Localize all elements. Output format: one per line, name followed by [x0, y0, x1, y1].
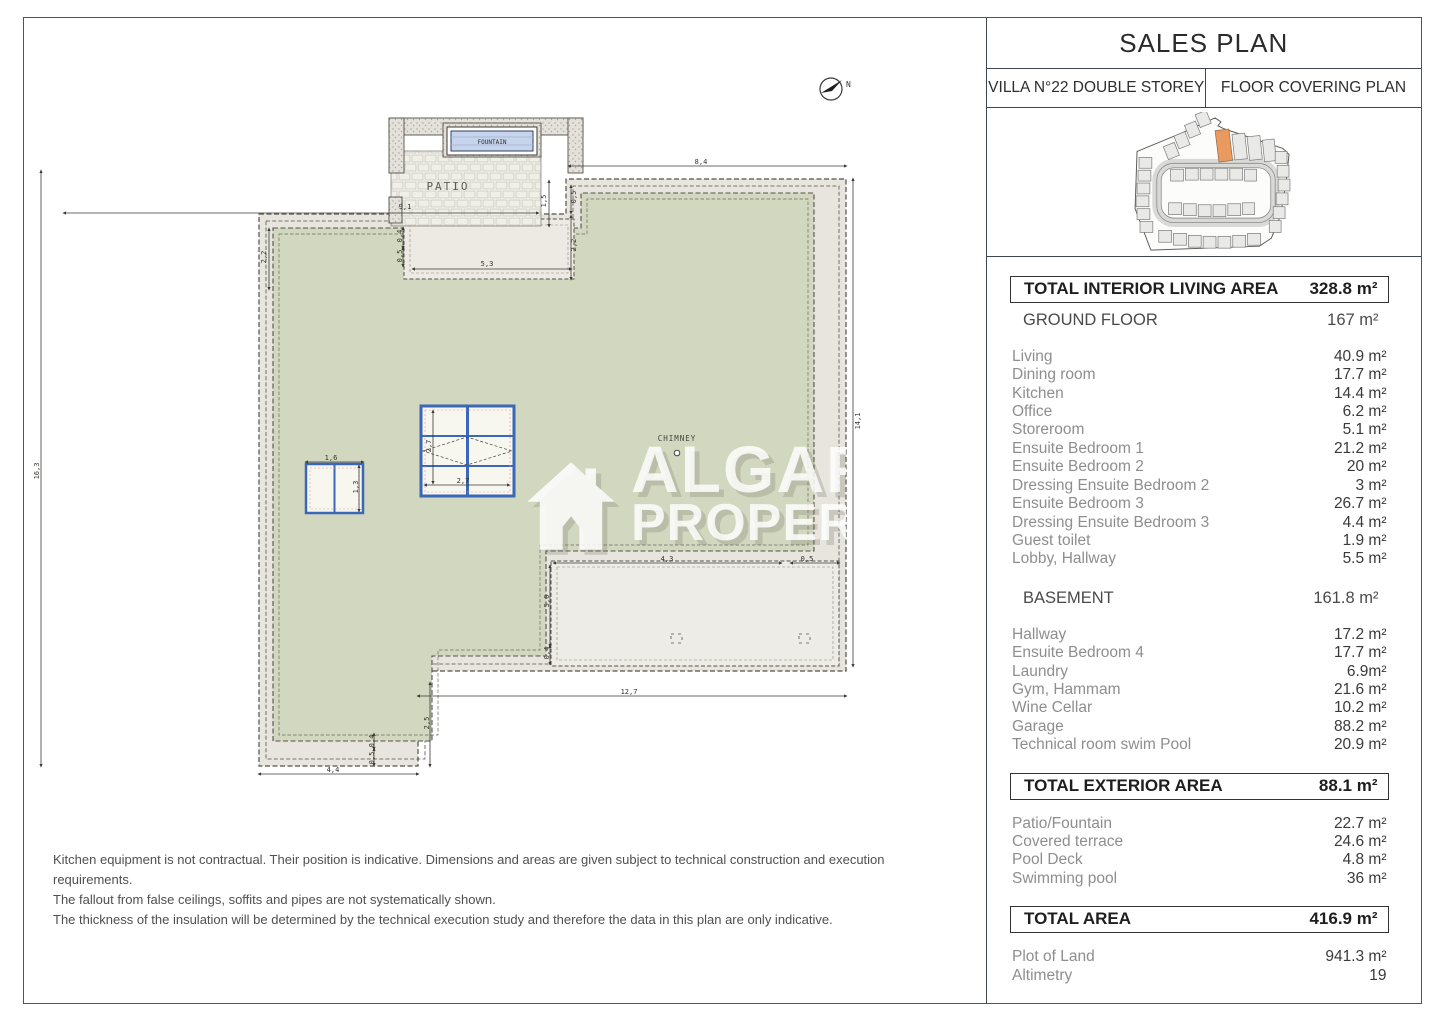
- room-area-value: 4.8 m²: [1343, 851, 1387, 869]
- room-row: Patio/Fountain22.7 m²: [1012, 815, 1387, 833]
- room-area-value: 17.7 m²: [1334, 644, 1387, 662]
- dimension-label: 0,5: [368, 752, 376, 765]
- room-label: Garage: [1012, 718, 1064, 736]
- room-area-value: 5.5 m²: [1343, 550, 1387, 568]
- room-area-value: 22.7 m²: [1334, 815, 1387, 833]
- room-row: Altimetry19: [1012, 967, 1387, 985]
- sheet-border: N PATIO FOUNTAIN CHIMNEY ALGARVE PROPERT…: [23, 17, 1422, 1004]
- room-row: Living40.9 m²: [1012, 348, 1387, 366]
- sheet-title: SALES PLAN: [987, 18, 1421, 69]
- section-label: TOTAL AREA: [1024, 909, 1131, 929]
- room-area-value: 19: [1369, 967, 1386, 985]
- room-row: Pool Deck4.8 m²: [1012, 851, 1387, 869]
- room-row: Dressing Ensuite Bedroom 23 m²: [1012, 477, 1387, 495]
- north-compass-icon: [820, 78, 842, 100]
- dimension-label: 2,7: [425, 440, 433, 453]
- room-label: Covered terrace: [1012, 833, 1123, 851]
- title-block-row: VILLA N°22 DOUBLE STOREY FLOOR COVERING …: [987, 69, 1421, 108]
- section-header-total-interior-living-area: TOTAL INTERIOR LIVING AREA328.8 m²: [1010, 276, 1389, 303]
- room-area-value: 40.9 m²: [1334, 348, 1387, 366]
- room-label: Living: [1012, 348, 1053, 366]
- section-label: BASEMENT: [1023, 589, 1114, 608]
- room-row: Swimming pool36 m²: [1012, 870, 1387, 888]
- dimension-label: 9,1: [399, 203, 412, 211]
- dimension-label: 2,5: [423, 717, 431, 730]
- room-row: Covered terrace24.6 m²: [1012, 833, 1387, 851]
- dimension-label: 12,7: [621, 688, 638, 696]
- dimension-label: 0,5: [570, 191, 578, 204]
- room-area-value: 6.9m²: [1347, 663, 1387, 681]
- room-area-value: 88.2 m²: [1334, 718, 1387, 736]
- section-label: GROUND FLOOR: [1023, 311, 1158, 330]
- room-area-value: 10.2 m²: [1334, 699, 1387, 717]
- dimension-label: 0,5: [396, 250, 404, 263]
- room-area-value: 941.3 m²: [1325, 948, 1386, 966]
- dimension-label: 8,4: [695, 158, 708, 166]
- room-row: Laundry6.9m²: [1012, 663, 1387, 681]
- dimension-label: 2,7: [457, 477, 470, 485]
- dimension-label: 16,3: [33, 463, 41, 480]
- dimension-label: 4,4: [327, 766, 340, 774]
- room-row: Lobby, Hallway5.5 m²: [1012, 550, 1387, 568]
- chimney-label: CHIMNEY: [658, 434, 697, 443]
- room-area-value: 17.2 m²: [1334, 626, 1387, 644]
- pool-deck-terrace: [551, 561, 839, 666]
- section-label: TOTAL EXTERIOR AREA: [1024, 776, 1223, 796]
- room-label: Plot of Land: [1012, 948, 1095, 966]
- room-label: Storeroom: [1012, 421, 1084, 439]
- room-label: Swimming pool: [1012, 870, 1117, 888]
- villa-name: VILLA N°22 DOUBLE STOREY: [987, 69, 1206, 107]
- room-label: Altimetry: [1012, 967, 1072, 985]
- section-header-basement: BASEMENT161.8 m²: [1010, 587, 1389, 611]
- room-label: Dining room: [1012, 366, 1096, 384]
- dimension-label: 0,4: [543, 647, 551, 660]
- footnote-line: The fallout from false ceilings, soffits…: [53, 890, 963, 910]
- room-area-value: 17.7 m²: [1334, 366, 1387, 384]
- room-list: Living40.9 m²Dining room17.7 m²Kitchen14…: [1012, 348, 1387, 569]
- room-label: Guest toilet: [1012, 532, 1090, 550]
- room-label: Ensuite Bedroom 2: [1012, 458, 1144, 476]
- north-label: N: [846, 80, 851, 89]
- room-row: Ensuite Bedroom 326.7 m²: [1012, 495, 1387, 513]
- section-header-total-exterior-area: TOTAL EXTERIOR AREA88.1 m²: [1010, 773, 1389, 800]
- sidebar-sections: TOTAL INTERIOR LIVING AREA328.8 m²GROUND…: [987, 257, 1421, 1003]
- room-row: Gym, Hammam21.6 m²: [1012, 681, 1387, 699]
- room-list: Plot of Land941.3 m²Altimetry19: [1012, 948, 1387, 985]
- section-header-total-area: TOTAL AREA416.9 m²: [1010, 906, 1389, 933]
- dimension-label: 2,2: [260, 251, 268, 264]
- room-label: Gym, Hammam: [1012, 681, 1121, 699]
- section-header-ground-floor: GROUND FLOOR167 m²: [1010, 309, 1389, 333]
- title-block-sidebar: SALES PLAN VILLA N°22 DOUBLE STOREY FLOO…: [986, 18, 1421, 1003]
- room-row: Guest toilet1.9 m²: [1012, 532, 1387, 550]
- footnotes: Kitchen equipment is not contractual. Th…: [53, 850, 963, 931]
- section-area-value: 161.8 m²: [1313, 589, 1378, 608]
- room-area-value: 5.1 m²: [1343, 421, 1387, 439]
- room-area-value: 4.4 m²: [1343, 514, 1387, 532]
- plan-type: FLOOR COVERING PLAN: [1206, 69, 1420, 107]
- dimension-label: 14,1: [854, 413, 862, 430]
- dimension-label: 5,3: [481, 260, 494, 268]
- room-area-value: 20.9 m²: [1334, 736, 1387, 754]
- room-label: Wine Cellar: [1012, 699, 1092, 717]
- room-area-value: 14.4 m²: [1334, 385, 1387, 403]
- section-area-value: 167 m²: [1327, 311, 1378, 330]
- section-label: TOTAL INTERIOR LIVING AREA: [1024, 279, 1278, 299]
- dimension-label: 2,2: [570, 239, 578, 252]
- room-row: Dining room17.7 m²: [1012, 366, 1387, 384]
- room-row: Wine Cellar10.2 m²: [1012, 699, 1387, 717]
- room-label: Technical room swim Pool: [1012, 736, 1191, 754]
- room-row: Ensuite Bedroom 417.7 m²: [1012, 644, 1387, 662]
- room-label: Dressing Ensuite Bedroom 3: [1012, 514, 1209, 532]
- room-row: Hallway17.2 m²: [1012, 626, 1387, 644]
- room-label: Ensuite Bedroom 3: [1012, 495, 1144, 513]
- site-plan-box: [987, 108, 1421, 257]
- room-area-value: 3 m²: [1356, 477, 1387, 495]
- room-area-value: 21.6 m²: [1334, 681, 1387, 699]
- dimension-label: 1,5: [540, 195, 548, 208]
- patio-label: PATIO: [426, 180, 469, 193]
- room-label: Office: [1012, 403, 1052, 421]
- room-row: Storeroom5.1 m²: [1012, 421, 1387, 439]
- dimension-label: 5,0: [543, 595, 551, 608]
- room-row: Dressing Ensuite Bedroom 34.4 m²: [1012, 514, 1387, 532]
- dimension-label: 0,4: [368, 735, 376, 748]
- room-row: Garage88.2 m²: [1012, 718, 1387, 736]
- room-row: Kitchen14.4 m²: [1012, 385, 1387, 403]
- room-label: Ensuite Bedroom 1: [1012, 440, 1144, 458]
- room-row: Office6.2 m²: [1012, 403, 1387, 421]
- room-area-value: 36 m²: [1347, 870, 1387, 888]
- patio: [389, 118, 583, 226]
- site-plan-map: [1120, 112, 1310, 260]
- room-list: Patio/Fountain22.7 m²Covered terrace24.6…: [1012, 815, 1387, 889]
- room-row: Plot of Land941.3 m²: [1012, 948, 1387, 966]
- dimension-label: 4,3: [661, 555, 674, 563]
- room-area-value: 21.2 m²: [1334, 440, 1387, 458]
- section-area-value: 88.1 m²: [1319, 776, 1378, 796]
- dimension-label: 0,4: [396, 230, 404, 243]
- chimney-mark: [674, 450, 680, 456]
- covered-terrace: [404, 219, 574, 279]
- room-label: Hallway: [1012, 626, 1066, 644]
- room-row: Ensuite Bedroom 220 m²: [1012, 458, 1387, 476]
- room-label: Lobby, Hallway: [1012, 550, 1116, 568]
- section-area-value: 328.8 m²: [1309, 279, 1377, 299]
- section-area-value: 416.9 m²: [1309, 909, 1377, 929]
- room-area-value: 24.6 m²: [1334, 833, 1387, 851]
- room-row: Ensuite Bedroom 121.2 m²: [1012, 440, 1387, 458]
- dimension-label: 1,3: [352, 481, 360, 494]
- room-label: Ensuite Bedroom 4: [1012, 644, 1144, 662]
- footnote-line: Kitchen equipment is not contractual. Th…: [53, 850, 963, 890]
- room-label: Pool Deck: [1012, 851, 1083, 869]
- room-area-value: 6.2 m²: [1343, 403, 1387, 421]
- room-area-value: 26.7 m²: [1334, 495, 1387, 513]
- room-label: Kitchen: [1012, 385, 1064, 403]
- floor-plan-area: N PATIO FOUNTAIN CHIMNEY ALGARVE PROPERT…: [24, 18, 986, 1003]
- dimension-label: 0,5: [801, 555, 814, 563]
- fountain-label: FOUNTAIN: [478, 139, 507, 146]
- room-label: Laundry: [1012, 663, 1068, 681]
- room-row: Technical room swim Pool20.9 m²: [1012, 736, 1387, 754]
- dimension-label: 1,6: [325, 454, 338, 462]
- room-label: Patio/Fountain: [1012, 815, 1112, 833]
- room-area-value: 1.9 m²: [1343, 532, 1387, 550]
- footnote-line: The thickness of the insulation will be …: [53, 910, 963, 930]
- room-list: Hallway17.2 m²Ensuite Bedroom 417.7 m²La…: [1012, 626, 1387, 755]
- room-label: Dressing Ensuite Bedroom 2: [1012, 477, 1209, 495]
- room-area-value: 20 m²: [1347, 458, 1387, 476]
